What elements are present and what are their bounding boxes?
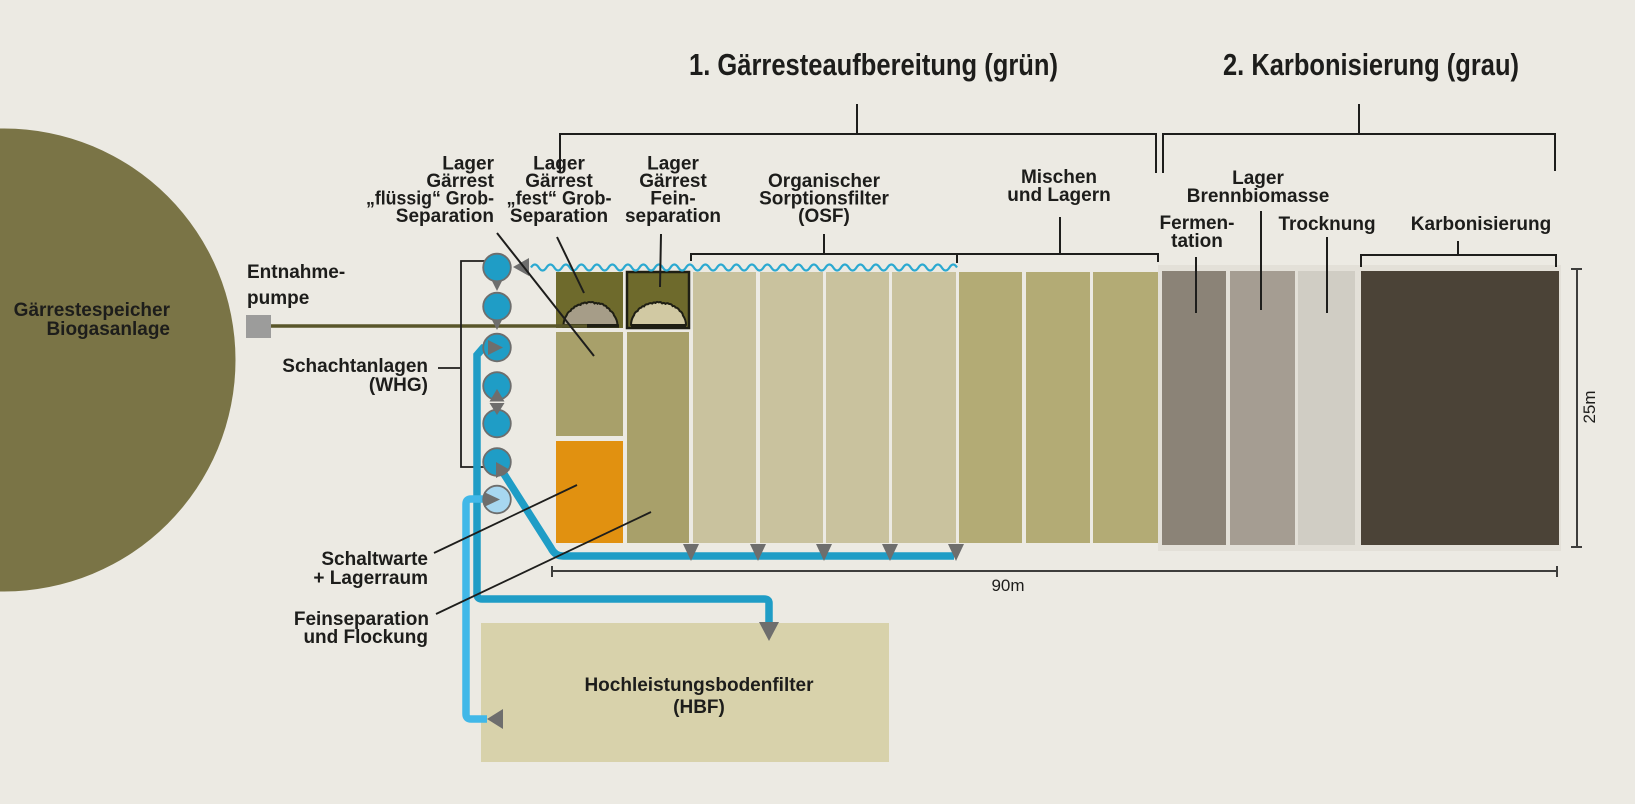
svg-text:Brennbiomasse: Brennbiomasse bbox=[1187, 186, 1330, 207]
svg-text:(WHG): (WHG) bbox=[369, 375, 428, 396]
svg-text:Schaltwarte: Schaltwarte bbox=[321, 549, 428, 570]
svg-text:Trocknung: Trocknung bbox=[1278, 214, 1375, 235]
svg-text:tation: tation bbox=[1171, 231, 1223, 252]
svg-text:25m: 25m bbox=[1580, 390, 1599, 423]
svg-text:90m: 90m bbox=[991, 576, 1024, 595]
svg-text:und Lagern: und Lagern bbox=[1007, 185, 1110, 206]
svg-text:Separation: Separation bbox=[510, 206, 608, 227]
svg-text:+ Lagerraum: + Lagerraum bbox=[313, 568, 428, 589]
svg-text:Biogasanlage: Biogasanlage bbox=[46, 319, 170, 340]
svg-text:pumpe: pumpe bbox=[247, 288, 309, 309]
svg-text:Hochleistungsbodenfilter: Hochleistungsbodenfilter bbox=[584, 675, 814, 696]
svg-text:Separation: Separation bbox=[396, 206, 494, 227]
svg-text:1. Gärresteaufbereitung (grün): 1. Gärresteaufbereitung (grün) bbox=[689, 47, 1058, 82]
svg-text:Entnahme-: Entnahme- bbox=[247, 262, 345, 283]
svg-text:2. Karbonisierung (grau): 2. Karbonisierung (grau) bbox=[1223, 47, 1519, 82]
svg-text:Karbonisierung: Karbonisierung bbox=[1411, 214, 1551, 235]
svg-text:Gärrestespeicher: Gärrestespeicher bbox=[14, 300, 171, 321]
svg-text:(OSF): (OSF) bbox=[798, 206, 850, 227]
svg-text:Schachtanlagen: Schachtanlagen bbox=[282, 356, 428, 377]
svg-text:separation: separation bbox=[625, 206, 721, 227]
svg-text:und Flockung: und Flockung bbox=[303, 627, 428, 648]
svg-text:(HBF): (HBF) bbox=[673, 697, 725, 718]
